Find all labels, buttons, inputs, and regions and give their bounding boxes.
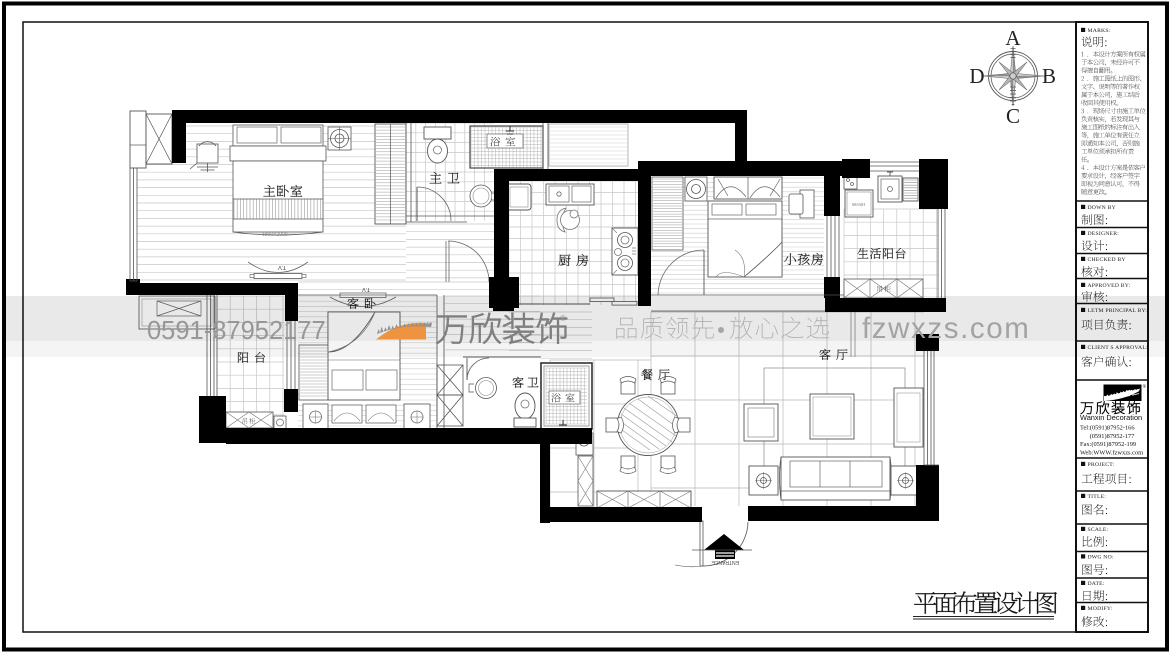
svg-text:1800X2000: 1800X2000	[262, 232, 288, 238]
svg-text:A: A	[1005, 26, 1021, 50]
svg-text:PROJECT:: PROJECT:	[1088, 462, 1115, 468]
svg-text:D: D	[969, 64, 984, 88]
svg-text:TITLE:: TITLE:	[1088, 494, 1107, 500]
svg-text:MARKS:: MARKS:	[1088, 28, 1111, 34]
svg-text:fzwxzs.com: fzwxzs.com	[862, 312, 1030, 345]
svg-text:ENTRANCE: ENTRANCE	[711, 559, 739, 565]
svg-text:DOWN BY: DOWN BY	[1088, 205, 1116, 211]
svg-text:T.V: T.V	[278, 264, 286, 270]
svg-text:C: C	[1006, 104, 1020, 128]
svg-text:Web:WWW.fzwxzs.com: Web:WWW.fzwxzs.com	[1080, 449, 1143, 456]
svg-text:WASH: WASH	[852, 202, 865, 207]
svg-text:DESIGNER:: DESIGNER:	[1088, 231, 1120, 237]
svg-text:(0591)87952-177: (0591)87952-177	[1080, 433, 1135, 440]
svg-text:CHECKED BY: CHECKED BY	[1088, 257, 1126, 263]
svg-text:Wanxin Decoration: Wanxin Decoration	[1080, 413, 1142, 422]
svg-text:T.V: T.V	[362, 286, 370, 292]
svg-text:®: ®	[1143, 384, 1147, 390]
svg-text:B: B	[1042, 64, 1056, 88]
svg-text:MODIFY:: MODIFY:	[1088, 606, 1113, 612]
svg-text:0591-87952177: 0591-87952177	[147, 317, 326, 345]
svg-text:DATE:: DATE:	[1088, 581, 1105, 587]
svg-text:DWG NO:: DWG NO:	[1088, 555, 1114, 561]
svg-text:Fax:(0591)87952-199: Fax:(0591)87952-199	[1080, 441, 1136, 448]
svg-text:®: ®	[560, 314, 566, 323]
svg-text:Tel:(0591)87952-166: Tel:(0591)87952-166	[1080, 425, 1135, 432]
svg-text:SCALE:: SCALE:	[1088, 527, 1109, 533]
svg-text:APPROVED BY:: APPROVED BY:	[1088, 283, 1131, 289]
